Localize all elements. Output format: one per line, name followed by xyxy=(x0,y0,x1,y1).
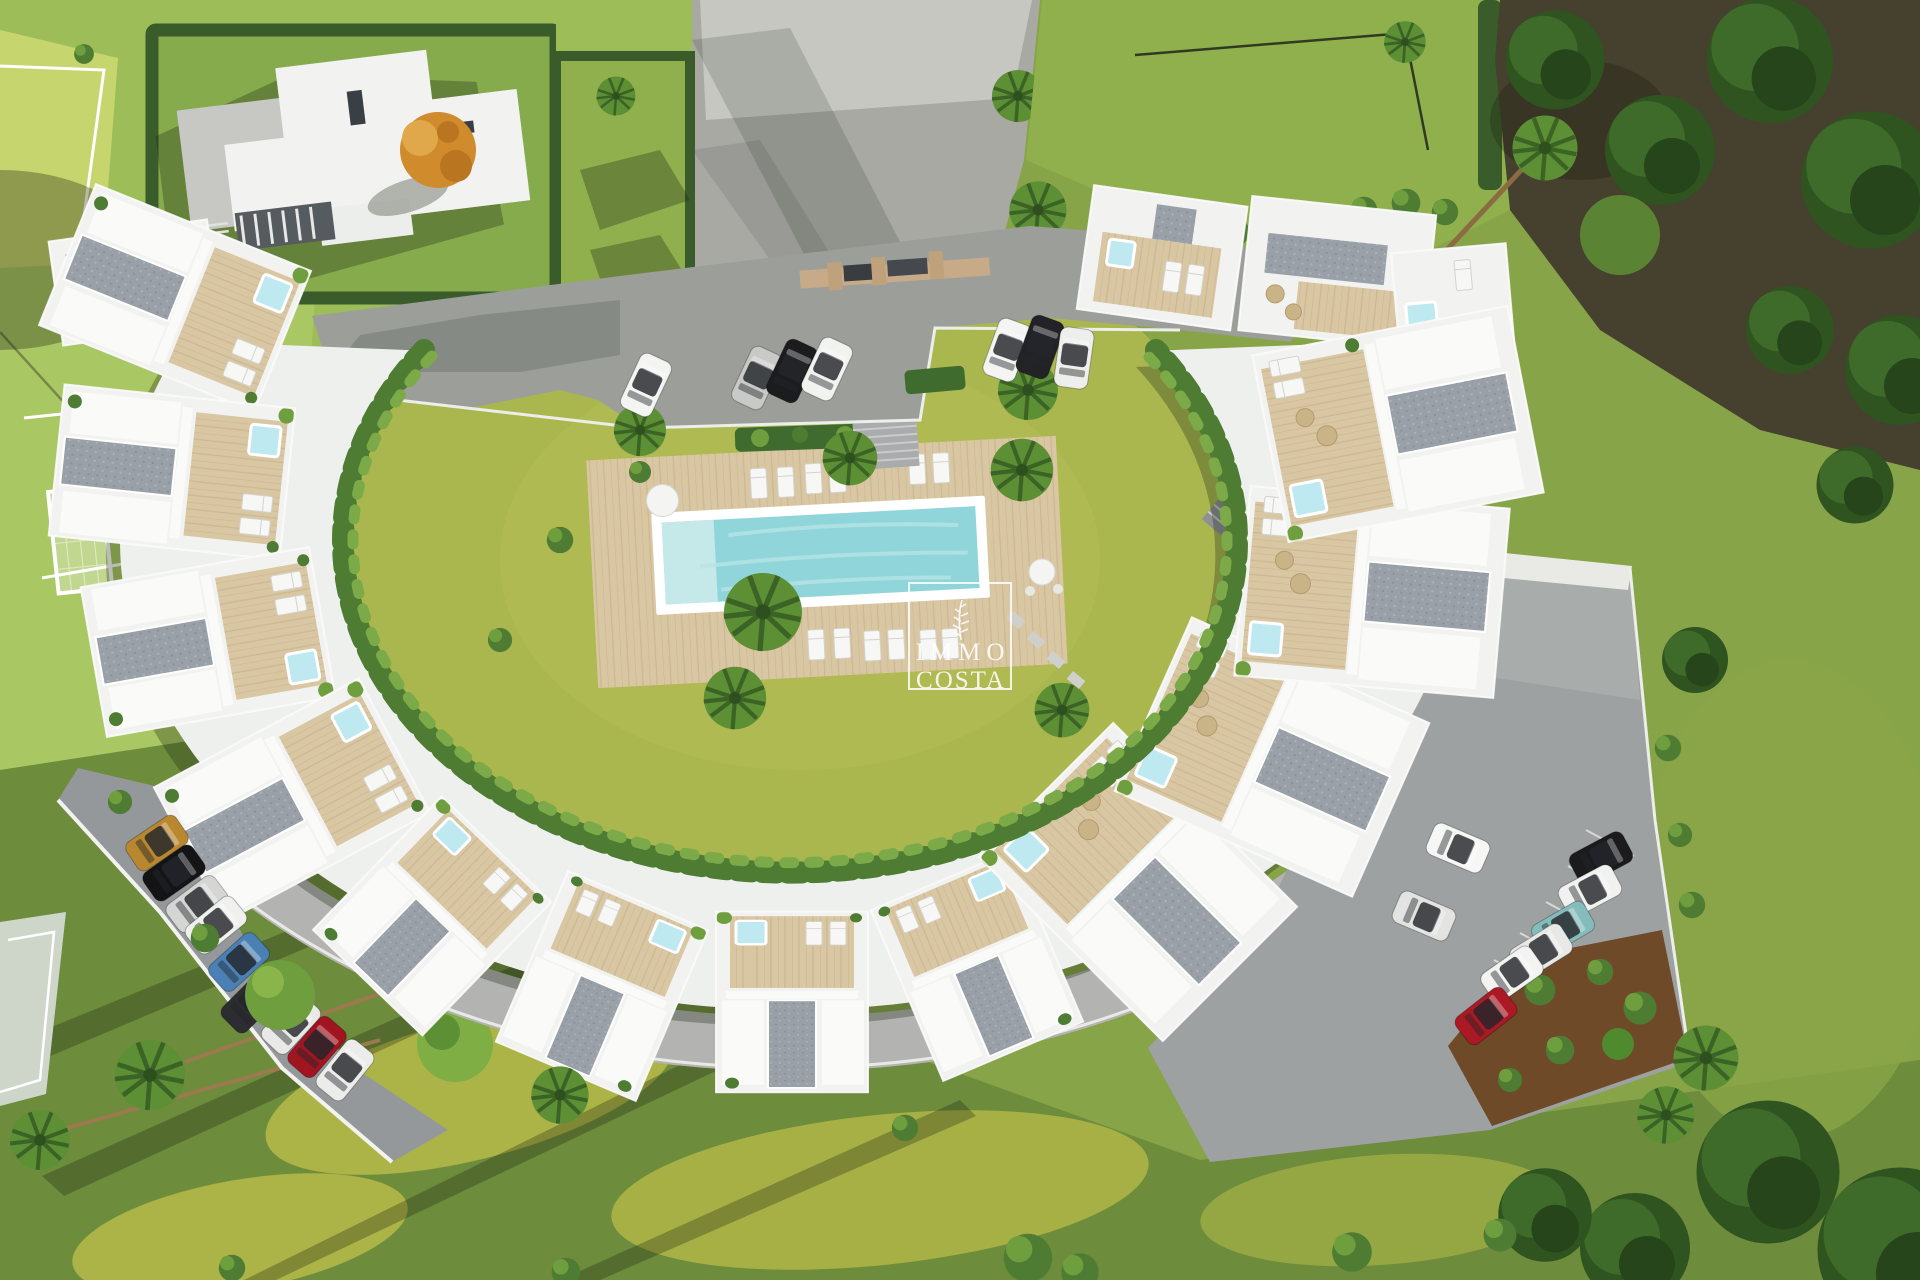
watermark-line1: IMMO xyxy=(916,639,1011,666)
aerial-render-image: IMMO COSTA xyxy=(0,0,1920,1280)
watermark-line2: COSTA xyxy=(916,667,1006,694)
hedged-garden xyxy=(556,56,690,302)
render-canvas: IMMO COSTA xyxy=(0,0,1920,1280)
